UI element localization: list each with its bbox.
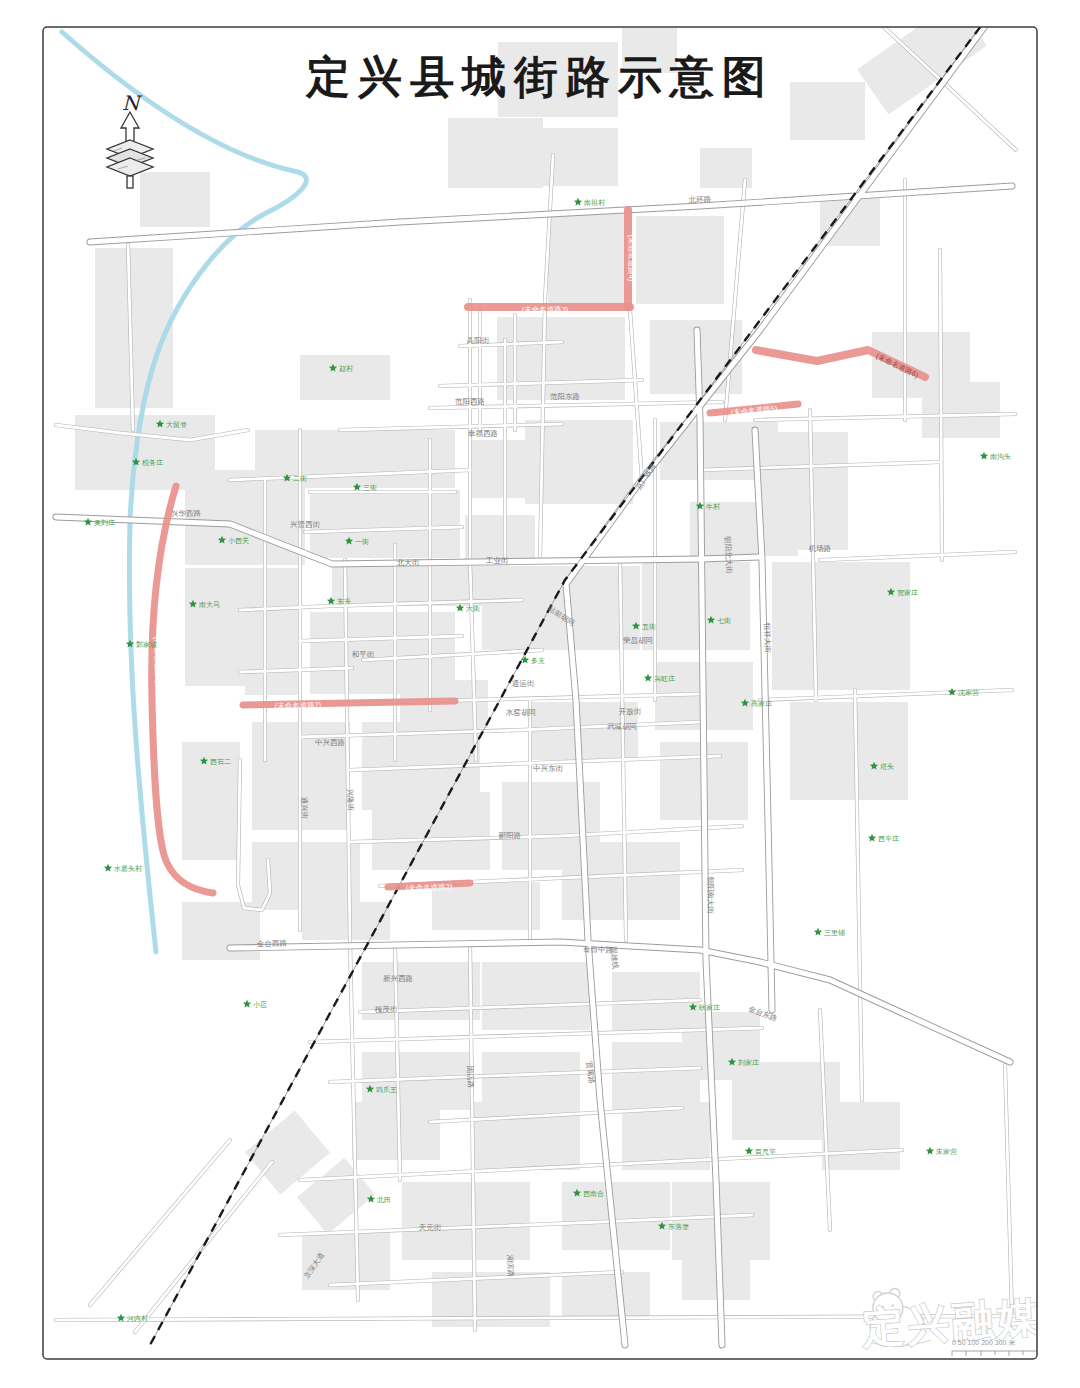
village-label: 小店 [253,1000,267,1008]
village-label: 西辛庄 [878,835,899,843]
village-label: 塔头 [879,763,894,771]
road-name-label: 固雄线 [609,946,620,970]
village-star-icon [574,198,582,206]
road-name-label: 北大街 [397,558,420,567]
road-name-label: 槐茂街 [375,1005,398,1014]
building-block [790,702,908,800]
building-block [310,490,460,558]
building-block [470,440,530,498]
road-name-label: 水窑胡同 [505,708,536,717]
building-block [300,355,390,400]
village-star-icon [644,674,652,682]
village-label: 南祖村 [584,199,605,207]
building-block [636,216,724,304]
map-title: 定兴县城街路示意图 [305,53,774,102]
road-name-label: 金台中路 [583,944,613,954]
road-name-label: 天元街 [419,1223,442,1232]
building-block [302,902,390,940]
building-block [822,1102,900,1170]
village-label: 北田 [377,1196,391,1204]
village-label: 东升 [337,598,351,605]
road-minor-fill [1005,1065,1012,1316]
village-label: 二街 [293,475,307,483]
road-name-label: 开放街 [619,707,642,716]
building-block [245,600,300,695]
village-label: 三里铺 [824,929,845,936]
road-name-label: 高阳街 [467,336,490,345]
village-label: 郭家坡 [136,641,157,649]
road-name-label: 通运街 [512,679,535,688]
village-label: 贾家庄 [897,589,918,597]
village-label: 水磨头村 [114,865,142,873]
village-label: 朱家营 [936,1148,957,1156]
building-block [562,1272,650,1320]
building-block [760,432,848,550]
building-block [857,1,987,115]
road-name-label: 和平街 [352,650,375,659]
village-star-icon [868,834,876,842]
village-star-icon [104,864,112,872]
village-label: 六街 [466,605,480,613]
scale-bar-label: 0 50 100 200 300 米 [952,1339,1015,1346]
building-block [185,470,305,565]
road-name-label: 兴隆街 [346,789,356,812]
village-label: 牛村 [706,503,720,511]
village-label: 耿家庄 [699,1004,720,1012]
road-name-label: 固店路 [466,1066,476,1089]
road-name-label: 湖滨路 [506,1255,516,1278]
road-name-label: 金台西路 [257,938,287,948]
building-block [562,842,680,920]
building-block [548,210,626,303]
road-name-label: 恒祥大街 [762,622,772,654]
road-name-label: 中兴东街 [533,764,564,773]
village-label: 沈家营 [958,689,979,697]
village-label: 刘家庄 [737,1059,759,1067]
village-label: 三街 [363,484,377,492]
road-name-label: 贤寓路 [584,1061,596,1085]
building-block [95,248,173,408]
village-label: 七街 [717,617,731,625]
road-name-label: 朝阳南大街 [706,876,715,914]
road-name-label: 中兴西路 [315,738,345,747]
street-map: (未命名道路1)(未命名道路2)(未命名道路3)(未命名道路4)(未命名道路5)… [0,0,1080,1388]
unnamed-road-label: (未命名道路4) [627,235,636,282]
village-label: 一街 [355,538,369,546]
unnamed-road-label: (未命名道路7) [275,701,322,711]
building-block [465,515,535,560]
village-label: 东落堡 [668,1223,689,1231]
building-block [448,118,543,188]
unnamed-road-label: (未命名道路5) [730,404,778,417]
road-minor-fill [940,250,942,560]
building-block [182,902,260,960]
road-name-label: 幸福西路 [468,429,498,438]
village-label: 百尺竿 [755,1148,776,1156]
village-star-icon [814,928,822,936]
village-label: 多支 [531,657,545,665]
map-page: (未命名道路1)(未命名道路2)(未命名道路3)(未命名道路4)(未命名道路5)… [0,0,1080,1388]
village-label: 南沟头 [990,453,1011,461]
building-block [922,382,1000,438]
village-label: 兴旺庄 [654,675,675,683]
road-name-label: 郦阳路 [499,831,522,840]
building-block [790,82,865,140]
village-label: 鸡爪王 [375,1086,397,1093]
road-name-label: 工业街 [486,556,509,565]
road-name-label: 兴华西路 [171,509,201,519]
road-name-label: 范阳东路 [550,392,580,401]
village-star-icon [980,452,988,460]
scale-bar: 0 50 100 200 300 米 [952,1339,1038,1356]
road-name-label: 范阳西路 [455,397,485,406]
building-block [372,792,490,870]
building-block [772,562,910,690]
village-label: 税务庄 [142,459,163,467]
village-star-icon [745,1147,753,1155]
building-block [402,1182,530,1260]
unnamed-road-label: (未命名道路2) [406,882,453,893]
road-minor-fill [820,552,1015,560]
unnamed-road-label: (未命名道路3) [522,305,569,314]
road-name-label: 北环路 [689,195,712,205]
village-star-icon [521,656,529,664]
north-arrow-head [121,112,139,142]
village-label: 高家庄 [751,700,772,708]
building-block [482,566,640,650]
road-name-label: 兴贤西街 [290,520,321,529]
village-label: 西南合 [583,1190,604,1198]
village-label: 吴刘庄 [94,519,115,527]
building-block [352,1102,440,1160]
road-name-label: 新兴西路 [383,974,413,983]
village-label: 小西关 [228,536,249,545]
village-label: 五街 [642,623,656,631]
road-name-label: 武城胡同 [607,722,637,731]
watermark-logo: 定兴融媒 [858,1278,1044,1352]
village-label: 南大马 [199,601,220,608]
village-label: 大留登 [166,421,187,429]
building-block [482,962,590,1030]
building-block [472,1102,580,1170]
road-minor-fill [90,1140,230,1305]
village-label: 河内村 [126,1315,148,1323]
village-label: 西石二 [210,758,231,766]
village-label: 赵村 [339,365,353,373]
road-name-label: 机场路 [809,544,832,553]
village-star-icon [926,1147,934,1155]
building-block [140,172,210,227]
village-star-icon [243,1000,251,1008]
road-minor-fill [300,722,700,737]
building-block [482,1052,580,1110]
road-name-label: 通兴街 [300,797,310,820]
road-name-label: 荣昌胡同 [623,636,653,645]
building-block [642,562,750,650]
